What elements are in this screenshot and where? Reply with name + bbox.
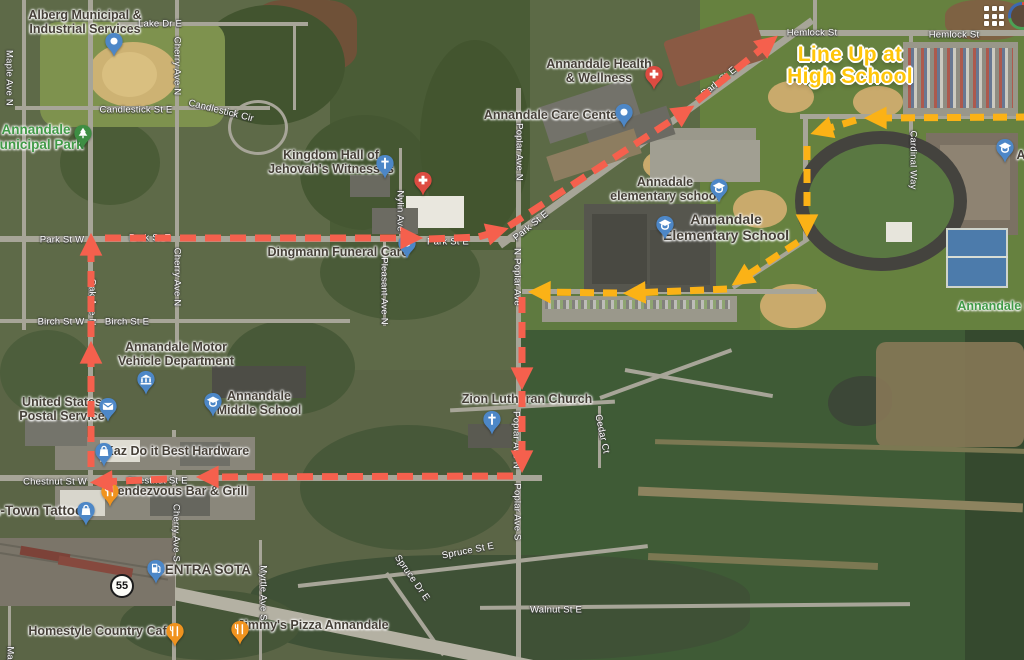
poi-label-annandale-care-center[interactable]: Annandale Care Center	[484, 108, 622, 122]
street-label: Nylin Ave	[395, 190, 406, 231]
street-label: N Poplar Ave	[512, 248, 523, 306]
map-pin-centra-sota[interactable]	[146, 560, 166, 587]
map-pin-annadale-elementary[interactable]	[709, 179, 729, 206]
poi-label-alberg-municipal[interactable]: Alberg Municipal &Industrial Services	[28, 8, 141, 36]
street-label: Chestnut St W	[23, 477, 87, 488]
map-canvas[interactable]: Lake Dr ECherry Ave NMaple Ave NCandlest…	[0, 0, 1024, 660]
map-pin-rendezvous-bar-grill[interactable]	[100, 483, 120, 510]
lineup-annotation: Line Up at High School	[787, 44, 913, 88]
map-pin-usps[interactable]	[98, 398, 118, 425]
map-pin-a-town-tattoo[interactable]	[76, 502, 96, 529]
street-label: Maple Ave S	[5, 646, 16, 660]
lineup-line1: Line Up at	[787, 44, 913, 66]
street-label: Cardinal Way	[908, 130, 919, 189]
map-pin-homestyle-country-cafe[interactable]	[165, 623, 185, 650]
street-label: Walnut St E	[530, 605, 582, 616]
poi-label-a-town-tattoo[interactable]: A-Town Tattoo	[0, 503, 83, 518]
street-label: Birch St E	[105, 317, 149, 328]
street-label: Poplar Ave N	[514, 123, 525, 181]
street-label: Birch St W	[38, 317, 85, 328]
map-pin-annandale-care-center[interactable]	[614, 104, 634, 131]
poi-label-usps[interactable]: United StatesPostal Service	[19, 395, 104, 423]
map-pin-annandale-health-wellness[interactable]	[644, 66, 664, 93]
street-label: Park St W	[40, 235, 85, 246]
map-pin-motor-vehicle-dept[interactable]	[136, 371, 156, 398]
street-label: Poplar Ave N	[511, 411, 522, 469]
street-label: Maple Ave N	[4, 50, 15, 106]
street-label: Cherry Ave N	[172, 37, 183, 96]
poi-label-motor-vehicle-dept[interactable]: Annandale MotorVehicle Department	[118, 340, 234, 368]
poi-label-annandale-health-wellness[interactable]: Annandale Health& Wellness	[546, 57, 652, 85]
street-label: Hemlock St	[787, 28, 838, 39]
map-pin-health-place[interactable]	[413, 172, 433, 199]
poi-label-annandale-re-park[interactable]: Annandale Re	[957, 299, 1024, 313]
poi-label-rendezvous-bar-grill[interactable]: Rendezvous Bar & Grill	[109, 484, 248, 498]
highway-55-shield: 55	[110, 574, 134, 598]
street-label: Poplar Ave S	[512, 483, 523, 540]
map-pin-kaz-hardware[interactable]	[94, 443, 114, 470]
poi-label-annandale-middle-school[interactable]: AnnandaleMiddle School	[217, 389, 302, 417]
street-label: Oak Ave N	[87, 278, 98, 325]
street-label: Cherry Ave S	[171, 504, 182, 562]
map-pin-alberg-municipal[interactable]	[104, 33, 124, 60]
map-pin-annandale-middle-school[interactable]	[203, 393, 223, 420]
street-label: Pleasant Ave N	[379, 257, 390, 325]
map-pin-dingmann-funeral-care[interactable]	[397, 235, 417, 262]
poi-label-dingmann-funeral-care[interactable]: Dingmann Funeral Care	[268, 245, 409, 259]
street-label: Cherry Ave N	[172, 248, 183, 307]
street-label: Candlestick St E	[100, 105, 173, 116]
poi-label-annandale-municipal-park[interactable]: AnnandaleMunicipal Park	[0, 122, 84, 152]
map-pin-kingdom-hall[interactable]	[375, 155, 395, 182]
street-label: Lake Dr E	[138, 19, 182, 30]
apps-grid-icon[interactable]	[984, 6, 1004, 26]
poi-label-annandale-high-school[interactable]: A	[1016, 148, 1024, 162]
poi-label-centra-sota[interactable]: CENTRA SOTA	[155, 562, 251, 577]
street-label: Park St E	[427, 237, 469, 248]
street-label: Myrtle Ave S	[258, 565, 269, 621]
map-pin-jimmys-pizza[interactable]	[230, 621, 250, 648]
map-pin-annandale-high-school[interactable]	[995, 139, 1015, 166]
map-pin-annandale-elementary[interactable]	[655, 216, 675, 243]
street-label: Park St E	[129, 233, 171, 244]
lineup-line2: High School	[787, 66, 913, 88]
map-pin-zion-lutheran-church[interactable]	[482, 411, 502, 438]
poi-label-kaz-hardware[interactable]: Kaz Do it Best Hardware	[105, 444, 249, 458]
poi-label-homestyle-country-cafe[interactable]: Homestyle Country Cafe	[28, 624, 173, 638]
street-label: Hemlock St	[929, 30, 980, 41]
poi-label-jimmys-pizza[interactable]: Jimmy's Pizza Annandale	[237, 618, 388, 632]
map-pin-annandale-municipal-park[interactable]	[73, 125, 93, 152]
poi-label-annadale-elementary[interactable]: Annadaleelementary school	[610, 175, 720, 203]
poi-label-zion-lutheran-church[interactable]: Zion Lutheran Church	[462, 392, 593, 406]
poi-label-annandale-elementary[interactable]: AnnandaleElementary School	[663, 212, 789, 243]
